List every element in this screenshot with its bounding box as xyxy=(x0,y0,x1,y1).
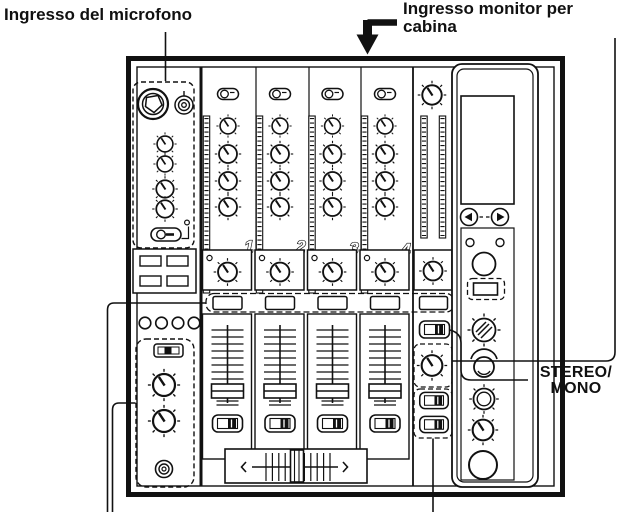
button-icon xyxy=(167,276,188,286)
effect-parameter-knob xyxy=(469,384,499,414)
effect-time-knob xyxy=(468,314,501,347)
stereo-mono-label-line1: STEREO/ xyxy=(524,365,628,381)
button-icon xyxy=(140,276,161,286)
effect-mix-knob xyxy=(468,415,498,445)
eq-hi-knob xyxy=(372,141,398,167)
booth-arrow-head-icon xyxy=(357,35,379,55)
manual-diagram-page: 1 2 3 4 xyxy=(0,0,629,512)
input-select-switch-icon xyxy=(218,89,239,100)
crossfader-assign-switch-icon xyxy=(318,415,348,432)
crossfader xyxy=(225,449,367,483)
booth-monitor-label: Ingresso monitor per cabina xyxy=(403,0,573,36)
button-icon xyxy=(167,256,188,266)
headphones-mixing-knob xyxy=(148,369,180,401)
balance-knob xyxy=(419,257,447,285)
effect-cue-button xyxy=(474,283,498,295)
crossfader-assign-switch-icon xyxy=(213,415,243,432)
trim-knob xyxy=(321,114,344,137)
eq-hi-knob xyxy=(215,141,241,167)
eq-mid-knob xyxy=(319,168,345,194)
eq-hi-knob xyxy=(267,141,293,167)
eq-low-knob xyxy=(215,194,241,220)
effect-curve-knob xyxy=(214,258,242,286)
booth-monitor-level-knob xyxy=(417,350,447,380)
eq-low-knob xyxy=(319,194,345,220)
cue-led-icon xyxy=(364,255,369,260)
mic-combo-jack-icon xyxy=(138,89,168,119)
channel-fader xyxy=(317,325,349,405)
channel-fader xyxy=(212,325,244,405)
mic-eq-knob xyxy=(153,132,176,155)
master-level-meter-left xyxy=(421,116,427,238)
booth-monitor-label-line1: Ingresso monitor per xyxy=(403,0,573,18)
beat-right-button xyxy=(492,209,509,226)
mixer-diagram: 1 2 3 4 xyxy=(0,0,629,512)
effect-on-off-button xyxy=(469,451,497,479)
trim-knob xyxy=(216,114,239,137)
crossfader-assign-switch-icon xyxy=(370,415,400,432)
cue-button xyxy=(318,297,347,310)
effect-select-button xyxy=(466,239,474,247)
master-level-meter-right xyxy=(439,116,445,238)
beat-left-button xyxy=(461,209,478,226)
stereo-mono-label: STEREO/ MONO xyxy=(524,365,628,397)
talkover-buttons xyxy=(133,249,196,293)
effect-curve-knob xyxy=(319,258,347,286)
headphones-level-knob xyxy=(148,405,180,437)
channel-fader xyxy=(264,325,296,405)
booth-monitor-label-line2: cabina xyxy=(403,18,573,36)
fader-start-switch-icon xyxy=(420,416,449,432)
crossfader-handle xyxy=(291,450,304,482)
mic-level-knob xyxy=(152,196,178,222)
mic-eq-knob xyxy=(153,152,176,175)
trim-knob xyxy=(268,114,291,137)
mono-split-switch-icon xyxy=(154,344,183,357)
cue-button xyxy=(371,297,400,310)
button-icon xyxy=(140,256,161,266)
headphones-jack-icon xyxy=(156,461,173,478)
stereo-mono-switch-icon xyxy=(420,321,450,338)
sampler-level-knob xyxy=(418,81,447,110)
effect-curve-knob xyxy=(266,258,294,286)
cue-led-icon xyxy=(259,255,264,260)
trim-knob xyxy=(373,114,396,137)
cue-button xyxy=(213,297,242,310)
tap-button xyxy=(473,253,496,276)
effect-select-button xyxy=(496,239,504,247)
effect-curve-knob xyxy=(371,258,399,286)
effect-display xyxy=(461,96,514,204)
eq-mid-knob xyxy=(267,168,293,194)
input-select-switch-icon xyxy=(375,89,396,100)
stereo-mono-label-line2: MONO xyxy=(524,381,628,397)
master-cue-button xyxy=(420,297,448,310)
eq-low-knob xyxy=(372,194,398,220)
eq-hi-knob xyxy=(319,141,345,167)
cue-led-icon xyxy=(207,255,212,260)
input-select-switch-icon xyxy=(322,89,343,100)
eq-low-knob xyxy=(267,194,293,220)
input-select-switch-icon xyxy=(270,89,291,100)
mic-input-label: Ingresso del microfono xyxy=(4,5,192,25)
cue-button xyxy=(266,297,295,310)
fader-start-switch-icon xyxy=(420,392,449,408)
cue-led-icon xyxy=(312,255,317,260)
eq-mid-knob xyxy=(215,168,241,194)
eq-mid-knob xyxy=(372,168,398,194)
effects-section xyxy=(452,64,538,487)
channel-fader xyxy=(369,325,401,405)
crossfader-assign-switch-icon xyxy=(265,415,295,432)
